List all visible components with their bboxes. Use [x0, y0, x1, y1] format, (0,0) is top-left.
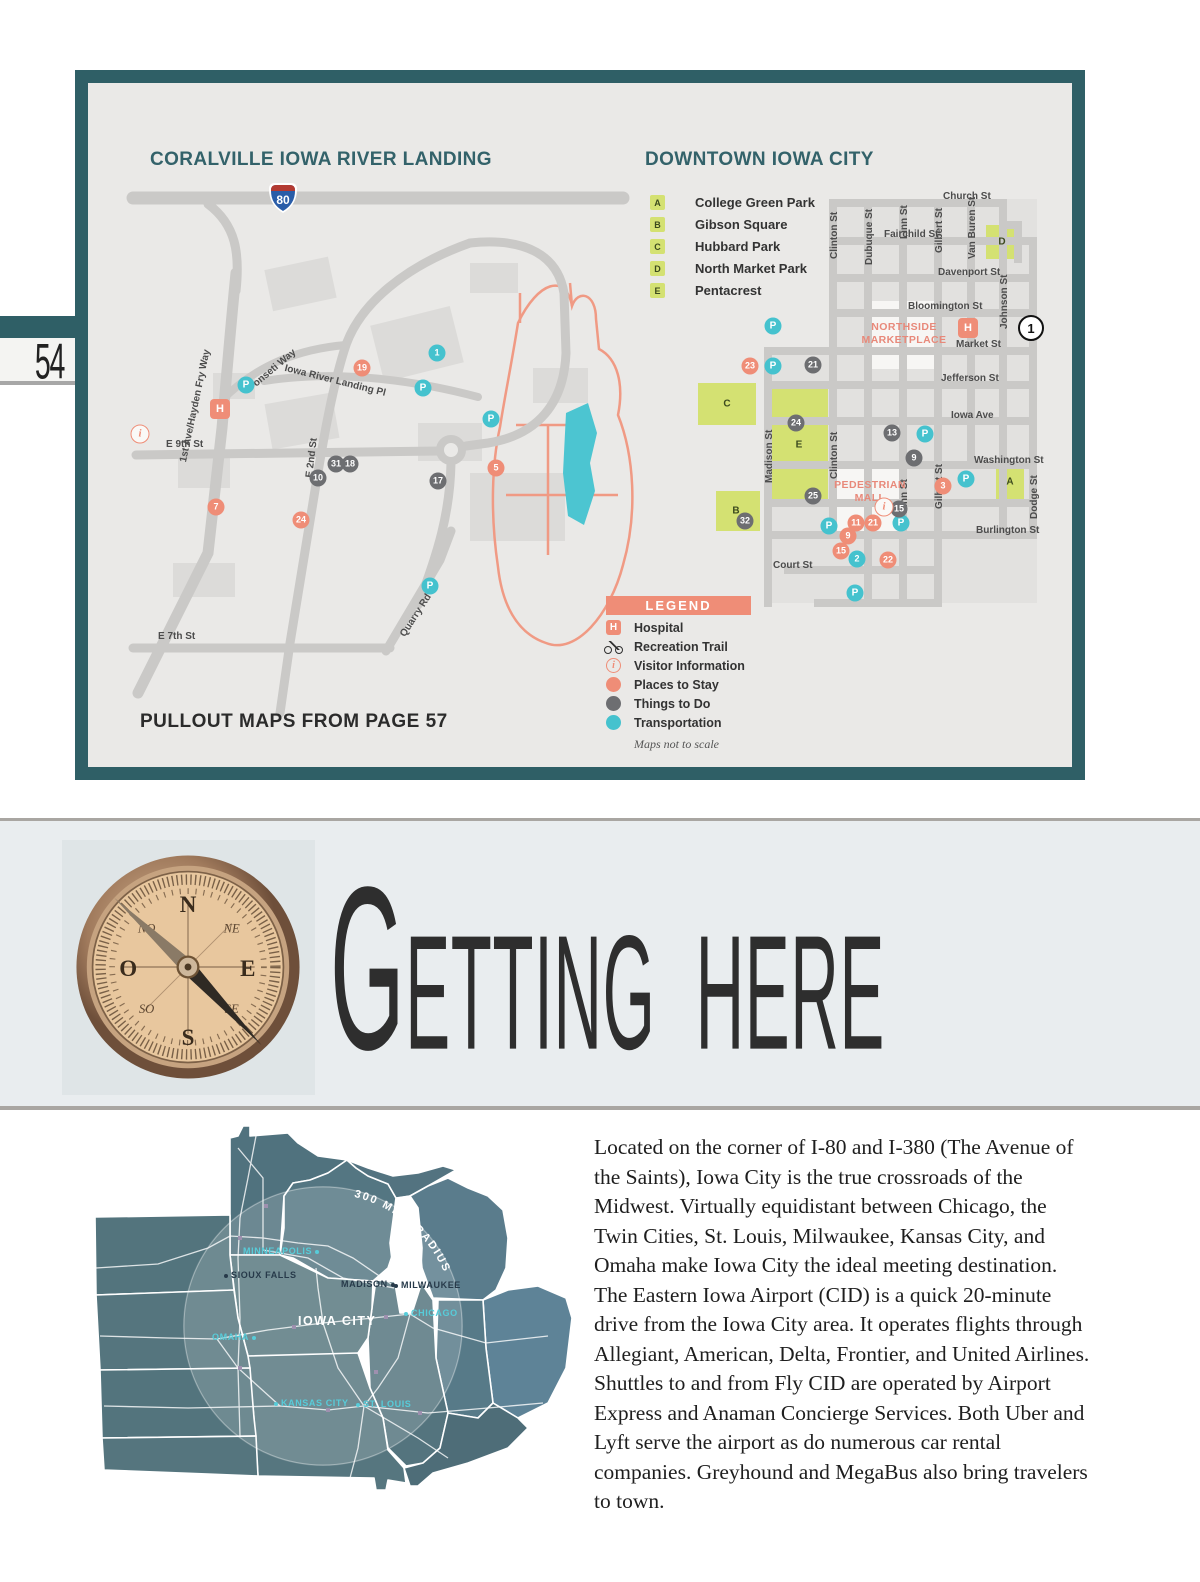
map-marker: P: [847, 585, 864, 602]
street-label: Market St: [956, 339, 1001, 350]
legend-icon: [606, 620, 621, 635]
legend-icon: [606, 696, 621, 711]
legend-icon: [606, 715, 621, 730]
legend-row: Places to Stay: [606, 678, 836, 691]
map-marker: P: [958, 471, 975, 488]
map-marker: P: [821, 518, 838, 535]
compass-photo: NE SO NONE SOSE: [62, 840, 315, 1095]
coralville-map: 80 1st Ave/Hayden Fry WayPonseti WayIowa…: [118, 173, 638, 733]
legend-label: Recreation Trail: [634, 640, 728, 654]
map-marker: D: [994, 234, 1011, 251]
map-marker: P: [917, 426, 934, 443]
park-key-chip: B: [650, 217, 665, 232]
map-marker: 10: [310, 470, 327, 487]
map-marker: 22: [880, 552, 897, 569]
svg-text:E: E: [240, 956, 255, 981]
map-marker: P: [422, 578, 439, 595]
map-marker: 7: [208, 499, 225, 516]
map-marker: H: [210, 399, 230, 419]
intro-paragraph: Located on the corner of I-80 and I-380 …: [594, 1133, 1094, 1517]
legend-label: Places to Stay: [634, 678, 719, 692]
street-label: Gilbert St: [934, 208, 945, 253]
roundabout: [440, 439, 462, 461]
legend-row: Recreation Trail: [606, 640, 836, 653]
map-marker: C: [719, 396, 736, 413]
street-label: Clinton St: [829, 432, 840, 479]
park-key-chip: A: [650, 195, 665, 210]
legend-icon: [606, 658, 621, 673]
pond-shape: [563, 403, 597, 525]
street-label: Linn St: [899, 205, 910, 239]
street-label: Dodge St: [1029, 475, 1040, 519]
map-marker: 25: [805, 488, 822, 505]
map-marker: 2: [849, 551, 866, 568]
map-marker: 21: [805, 357, 822, 374]
svg-text:N: N: [180, 892, 197, 917]
street-label: Dubuque St: [864, 209, 875, 265]
legend-icon: [606, 639, 621, 654]
legend-label: Visitor Information: [634, 659, 745, 673]
svg-text:NE: NE: [223, 922, 240, 936]
street-label: Jefferson St: [941, 373, 999, 384]
city-label: KANSAS CITY: [274, 1398, 349, 1408]
map-marker: 9: [906, 450, 923, 467]
city-label: MILWAUKEE: [394, 1280, 461, 1290]
midwest-map: 300 MILE RADIUS MINNEAPOLISSIOUX FALLSMA…: [88, 1118, 572, 1490]
map-marker: P: [483, 411, 500, 428]
svg-text:S: S: [182, 1025, 195, 1050]
compass-icon: NE SO NONE SOSE: [73, 852, 303, 1082]
map-marker: 21: [865, 515, 882, 532]
map-marker: 5: [488, 460, 505, 477]
midwest-map-graphic: 300 MILE RADIUS: [88, 1118, 572, 1490]
park-key-chip: E: [650, 283, 665, 298]
map-marker: i: [131, 425, 150, 444]
map-marker: 18: [342, 456, 359, 473]
coralville-map-title: CORALVILLE IOWA RIVER LANDING: [150, 149, 492, 171]
legend-row: Things to Do: [606, 697, 836, 710]
legend-icon: [606, 677, 621, 692]
svg-text:O: O: [119, 956, 137, 981]
street-label: Davenport St: [938, 267, 1000, 278]
street-label: Fairchild St: [884, 229, 938, 240]
legend-row: Hospital: [606, 621, 836, 634]
legend-note: Maps not to scale: [634, 737, 836, 752]
city-label: IOWA CITY: [298, 1314, 376, 1328]
banner-bottom-rule: [0, 1106, 1200, 1110]
street-label: Iowa Ave: [951, 410, 994, 421]
map-marker: P: [415, 380, 432, 397]
city-label: MINNEAPOLIS: [243, 1246, 319, 1256]
map-marker: H: [958, 318, 978, 338]
legend-row: Visitor Information: [606, 659, 836, 672]
svg-text:SO: SO: [139, 1002, 154, 1016]
map-marker: P: [765, 318, 782, 335]
legend-row: Transportation: [606, 716, 836, 729]
page-tab-rule: [0, 381, 76, 385]
downtown-map: Church StFairchild StDavenport StBloomin…: [688, 183, 1078, 623]
map-marker: B: [728, 503, 745, 520]
city-label: CHICAGO: [404, 1308, 458, 1318]
city-label: MADISON: [341, 1279, 395, 1289]
pullout-note: PULLOUT MAPS FROM PAGE 57: [140, 711, 448, 733]
street-label: Clinton St: [829, 212, 840, 259]
legend-label: Transportation: [634, 716, 722, 730]
map-marker: 13: [884, 425, 901, 442]
street-label: Burlington St: [976, 525, 1039, 536]
page-tab: 54: [0, 338, 76, 382]
park-key-chip: D: [650, 261, 665, 276]
map-marker: 1: [1018, 315, 1044, 341]
map-marker: A: [1002, 474, 1019, 491]
map-marker: 15: [833, 543, 850, 560]
svg-text:80: 80: [276, 193, 290, 207]
legend-title: LEGEND: [606, 596, 751, 615]
street-label: E 9th St: [166, 439, 203, 450]
map-marker: 24: [293, 512, 310, 529]
legend-label: Things to Do: [634, 697, 710, 711]
coralville-map-graphic: [118, 173, 638, 733]
park-key-chip: C: [650, 239, 665, 254]
street-label: E 7th St: [158, 631, 195, 642]
map-marker: 23: [742, 358, 759, 375]
city-label: OMAHA: [212, 1332, 256, 1342]
street-label: Van Buren St: [967, 197, 978, 259]
pullout-map-panel: CORALVILLE IOWA RIVER LANDING: [75, 70, 1085, 780]
map-marker: 17: [430, 473, 447, 490]
street-label: Washington St: [974, 455, 1044, 466]
map-marker: 24: [788, 415, 805, 432]
map-marker: i: [875, 498, 894, 517]
map-marker: 19: [354, 360, 371, 377]
city-label: SIOUX FALLS: [224, 1270, 297, 1280]
street-label: Madison St: [764, 430, 775, 483]
street-label: Court St: [773, 560, 812, 571]
map-legend: LEGEND Hospital Recreation Trail Visitor…: [606, 596, 836, 752]
city-label: ST. LOUIS: [356, 1399, 411, 1409]
legend-label: Hospital: [634, 621, 683, 635]
map-marker: 1: [429, 345, 446, 362]
interstate-80-shield: 80: [266, 180, 300, 216]
magazine-page: 54 CORALVILLE IOWA RIVER LANDING: [0, 0, 1200, 1582]
street-label: Bloomington St: [908, 301, 982, 312]
downtown-map-title: DOWNTOWN IOWA CITY: [645, 149, 874, 171]
legend-items: Hospital Recreation Trail Visitor Inform…: [606, 621, 836, 729]
section-title: Getting Here: [330, 852, 932, 1085]
map-marker: E: [791, 437, 808, 454]
map-marker: P: [238, 377, 255, 394]
street-label: Johnson St: [999, 275, 1010, 329]
map-marker: 3: [935, 478, 952, 495]
district-label: NORTHSIDE MARKETPLACE: [862, 321, 947, 347]
map-marker: P: [765, 358, 782, 375]
